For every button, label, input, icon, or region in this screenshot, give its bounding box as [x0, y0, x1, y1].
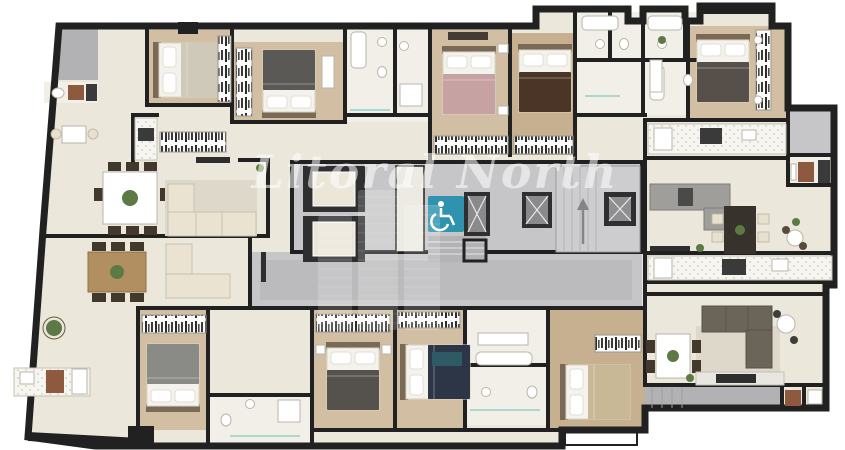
stove	[138, 128, 154, 141]
cabinet	[650, 60, 662, 92]
sink	[378, 38, 387, 47]
bathtub	[648, 16, 682, 30]
corridor-carpet	[260, 260, 632, 300]
watermark-text: Litoral North	[250, 145, 619, 199]
sink	[742, 130, 756, 140]
chair	[111, 242, 125, 251]
tv	[261, 252, 266, 282]
double-bed	[262, 50, 316, 118]
chair	[799, 242, 807, 250]
utility-door	[818, 160, 830, 183]
chair	[111, 293, 125, 302]
chair	[88, 129, 98, 139]
sink	[772, 259, 788, 271]
sink	[482, 388, 491, 397]
shower	[400, 84, 422, 106]
sink	[400, 42, 409, 51]
centerpiece	[122, 190, 138, 206]
toilet	[378, 67, 387, 78]
kitchen-cabinet	[86, 84, 97, 101]
chair	[712, 232, 723, 242]
chair	[92, 293, 106, 302]
toilet	[527, 386, 537, 398]
bathtub	[351, 32, 366, 68]
double-bed	[518, 44, 572, 112]
double-bed	[696, 34, 750, 102]
plant	[696, 244, 704, 252]
chair	[144, 226, 157, 235]
chair	[692, 360, 701, 373]
wardrobe	[160, 132, 226, 152]
chair	[108, 226, 121, 235]
floor-plan-image: Litoral North	[0, 0, 845, 450]
sofa	[746, 330, 772, 368]
chair	[692, 340, 701, 353]
chair	[646, 360, 655, 373]
terrace-floor	[59, 28, 98, 80]
laundry-sink	[808, 390, 822, 404]
chair	[758, 232, 769, 242]
throw-blanket	[678, 188, 693, 206]
bathtub	[476, 352, 532, 365]
toilet	[684, 75, 693, 86]
chair	[126, 226, 139, 235]
chair	[790, 336, 798, 344]
stove	[68, 85, 84, 100]
balcony-floor	[788, 108, 834, 155]
shower	[278, 400, 300, 422]
bathtub	[582, 16, 618, 30]
chair	[94, 188, 103, 201]
toilet	[620, 39, 629, 50]
sofa	[702, 306, 772, 332]
tv	[650, 246, 690, 251]
stove	[700, 128, 722, 144]
chair	[51, 129, 61, 139]
chair	[92, 242, 106, 251]
side-table	[777, 315, 795, 333]
wardrobe	[595, 335, 641, 352]
chair	[144, 162, 157, 171]
double-bed	[326, 342, 380, 410]
balcony	[565, 432, 637, 445]
nightstand	[382, 345, 391, 354]
cooktop	[716, 374, 756, 383]
plant	[46, 320, 62, 336]
double-bed	[146, 344, 200, 412]
sofa	[168, 212, 256, 236]
wardrobe	[142, 315, 206, 333]
nightstand	[498, 44, 508, 53]
chair	[130, 293, 144, 302]
toilet	[221, 414, 231, 426]
double-bed	[442, 46, 496, 114]
stove	[46, 370, 64, 393]
dresser	[322, 56, 334, 88]
nightstand	[498, 106, 508, 115]
lamp	[754, 96, 762, 104]
laundry-sink	[791, 164, 796, 180]
nightstand	[316, 345, 325, 354]
double-bed	[560, 364, 630, 420]
sink	[246, 400, 255, 409]
sink	[20, 372, 34, 384]
sofa	[166, 274, 230, 298]
fridge	[72, 369, 87, 394]
wardrobe	[236, 48, 252, 116]
double-bed	[153, 42, 223, 98]
chair	[126, 162, 139, 171]
sink	[596, 40, 605, 49]
toilet	[52, 88, 64, 98]
plant	[658, 36, 666, 44]
plant	[686, 374, 694, 382]
chair	[758, 214, 769, 224]
dresser	[448, 32, 488, 40]
centerpiece	[667, 350, 679, 362]
sink-counter	[478, 333, 528, 345]
chair	[646, 340, 655, 353]
throw-blanket	[432, 352, 462, 366]
centerpiece	[735, 225, 745, 235]
washer	[798, 162, 814, 182]
floor-plan-svg: Litoral North	[0, 0, 845, 450]
centerpiece	[110, 265, 124, 279]
wardrobe	[218, 36, 231, 102]
chair	[130, 242, 144, 251]
stove	[722, 259, 746, 275]
tv	[196, 157, 230, 163]
fridge	[654, 128, 672, 150]
washer	[785, 390, 801, 406]
chair	[712, 214, 723, 224]
small-table	[62, 126, 86, 143]
fridge	[654, 258, 672, 278]
chair	[782, 226, 790, 234]
plant	[792, 218, 800, 226]
chair	[773, 310, 781, 318]
lamp	[754, 36, 762, 44]
chair	[108, 162, 121, 171]
